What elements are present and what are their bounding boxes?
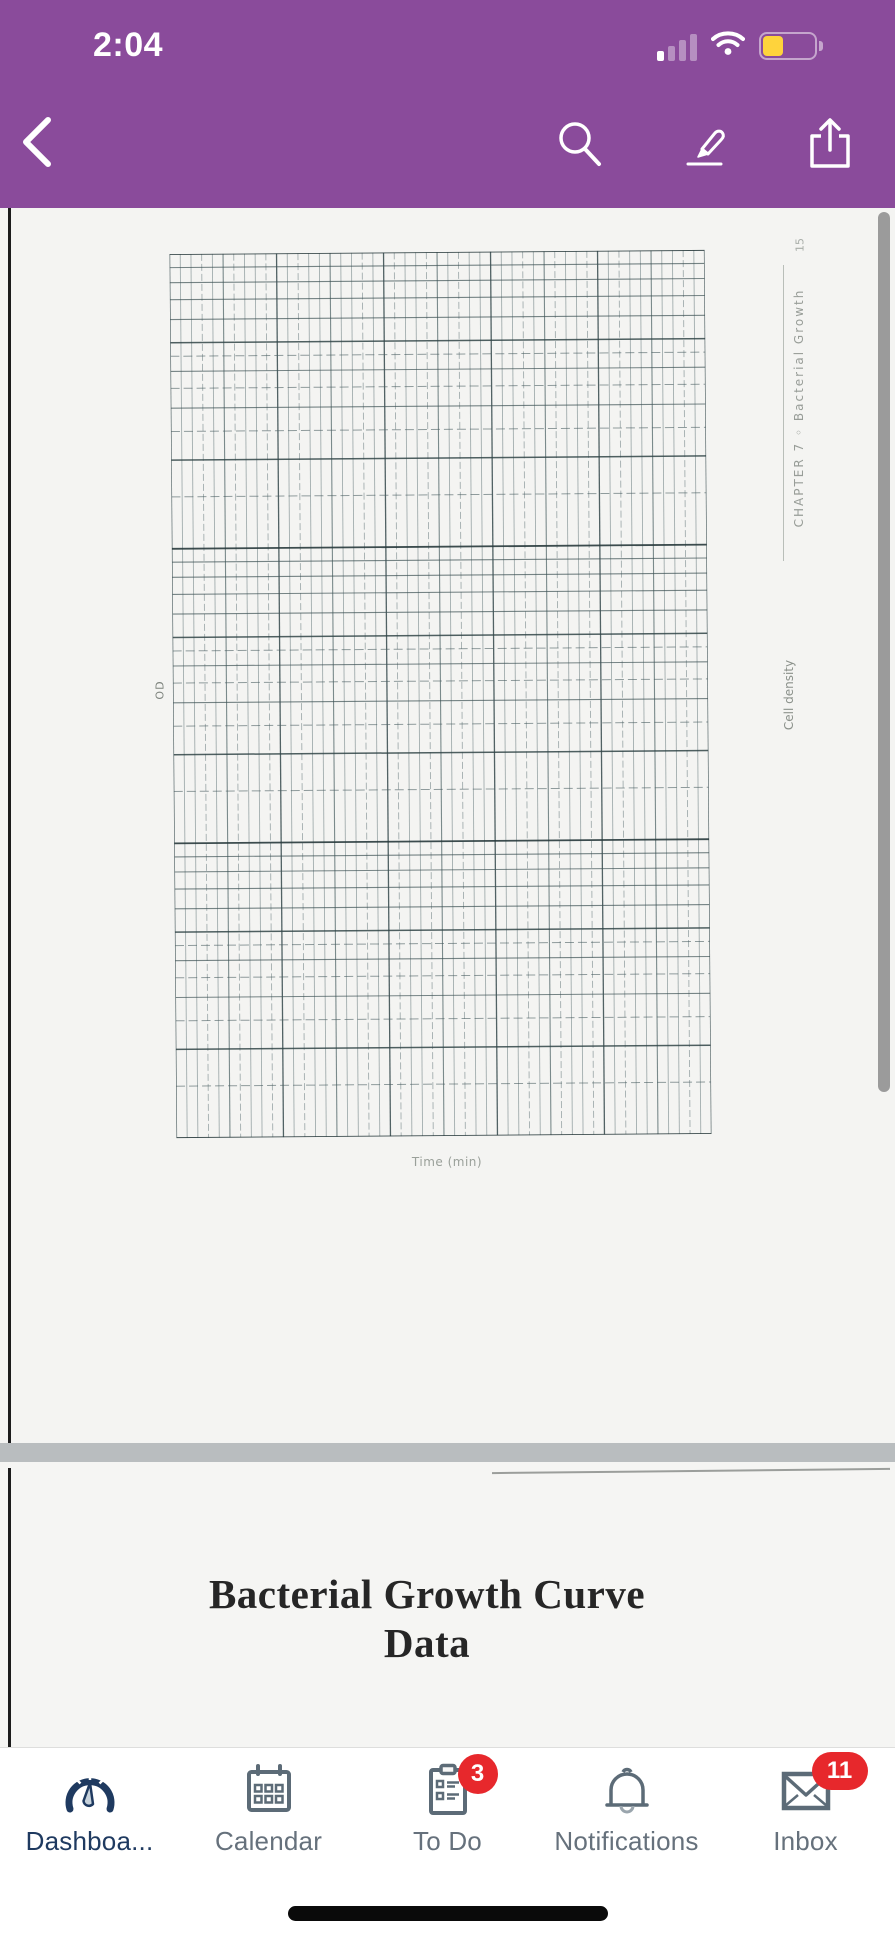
scanned-page-top-edge (492, 1468, 890, 1474)
tab-dashboard[interactable]: Dashboa... (0, 1748, 179, 1868)
status-bar: 2:04 (0, 0, 895, 80)
inbox-badge: 11 (812, 1752, 868, 1790)
search-icon (554, 118, 606, 170)
home-indicator[interactable] (288, 1906, 608, 1921)
document-title-line1: Bacterial Growth Curve (0, 1570, 854, 1619)
y-axis-label: OD (154, 680, 167, 699)
annotate-highlighter-icon (681, 118, 733, 170)
annotate-button[interactable] (675, 112, 739, 176)
tab-todo[interactable]: 3 To Do (358, 1748, 537, 1868)
document-viewer[interactable]: OD Cell density Time (min) CHAPTER 7 ◦ B… (0, 208, 895, 1747)
search-button[interactable] (548, 112, 612, 176)
nav-bar (0, 80, 895, 208)
chapter-rule-line (783, 265, 784, 561)
tab-label: Inbox (773, 1826, 838, 1857)
notifications-bell-icon (599, 1762, 655, 1818)
tab-calendar[interactable]: Calendar (179, 1748, 358, 1868)
tab-inbox[interactable]: 11 Inbox (716, 1748, 895, 1868)
semilog-graph-paper (170, 250, 712, 1138)
back-button[interactable] (6, 110, 70, 174)
tab-label: Calendar (215, 1826, 322, 1857)
tab-label: Dashboa... (26, 1826, 154, 1857)
todo-clipboard-icon: 3 (420, 1762, 476, 1818)
document-title: Bacterial Growth Curve Data (0, 1570, 854, 1668)
document-page-1: OD Cell density Time (min) CHAPTER 7 ◦ B… (0, 208, 895, 1443)
status-time: 2:04 (93, 26, 163, 65)
dashboard-gauge-icon (62, 1762, 118, 1818)
page-separator (0, 1443, 895, 1462)
page-number-label: 15 (794, 238, 807, 252)
tab-bar: Dashboa... Calendar (0, 1747, 895, 1936)
tab-notifications[interactable]: Notifications (537, 1748, 716, 1868)
tab-label: Notifications (554, 1826, 698, 1857)
calendar-icon (241, 1762, 297, 1818)
share-button[interactable] (798, 112, 862, 176)
right-axis-label: Cell density (782, 660, 796, 730)
tab-label: To Do (413, 1826, 482, 1857)
back-chevron-icon (16, 113, 60, 171)
wifi-icon (711, 30, 745, 61)
todo-badge: 3 (458, 1754, 498, 1794)
battery-icon (759, 32, 817, 60)
share-icon (804, 116, 856, 172)
phone-screen: 2:04 (0, 0, 895, 1936)
document-title-line2: Data (0, 1619, 854, 1668)
cellular-signal-icon (657, 31, 697, 61)
app-header: 2:04 (0, 0, 895, 208)
x-axis-label: Time (min) (412, 1155, 482, 1169)
page-edge-line (8, 208, 11, 1443)
inbox-envelope-icon: 11 (778, 1762, 834, 1818)
chapter-header-label: CHAPTER 7 ◦ Bacterial Growth (792, 289, 806, 528)
document-page-2: Bacterial Growth Curve Data Growth at 37… (0, 1462, 895, 1747)
scrollbar[interactable] (878, 212, 890, 1092)
